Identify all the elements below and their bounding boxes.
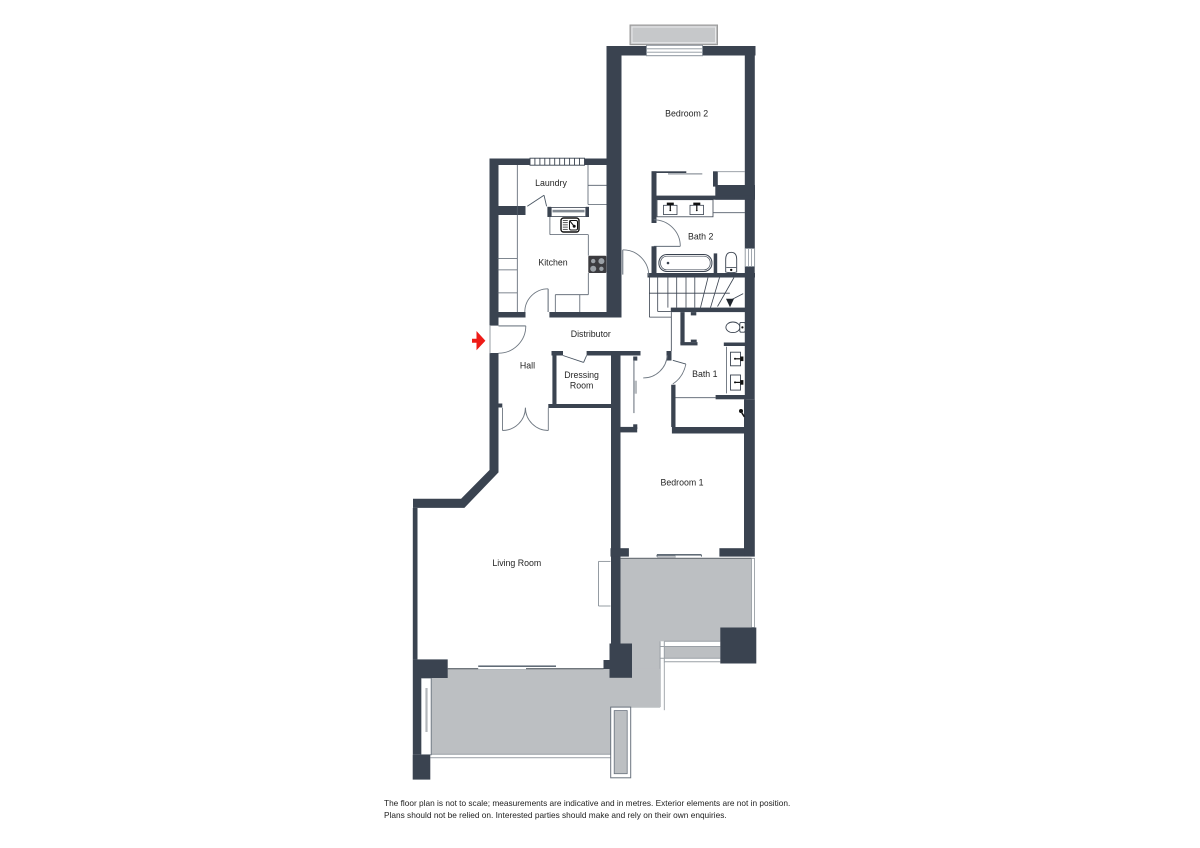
svg-text:Distributor: Distributor bbox=[571, 329, 611, 339]
svg-text:Plans should not be relied on.: Plans should not be relied on. Intereste… bbox=[384, 810, 727, 820]
svg-text:Living Room: Living Room bbox=[492, 558, 541, 568]
svg-text:Kitchen: Kitchen bbox=[538, 258, 567, 268]
svg-text:Bedroom 2: Bedroom 2 bbox=[665, 108, 708, 118]
svg-text:The floor plan is not to scale: The floor plan is not to scale; measurem… bbox=[384, 798, 790, 808]
svg-text:Bedroom 1: Bedroom 1 bbox=[660, 478, 703, 488]
svg-text:Dressing: Dressing bbox=[564, 370, 599, 380]
svg-text:Bath 1: Bath 1 bbox=[692, 369, 718, 379]
svg-text:Hall: Hall bbox=[520, 360, 535, 370]
svg-text:Room: Room bbox=[570, 381, 593, 391]
svg-text:Bath 2: Bath 2 bbox=[688, 231, 714, 241]
svg-text:Laundry: Laundry bbox=[535, 178, 567, 188]
